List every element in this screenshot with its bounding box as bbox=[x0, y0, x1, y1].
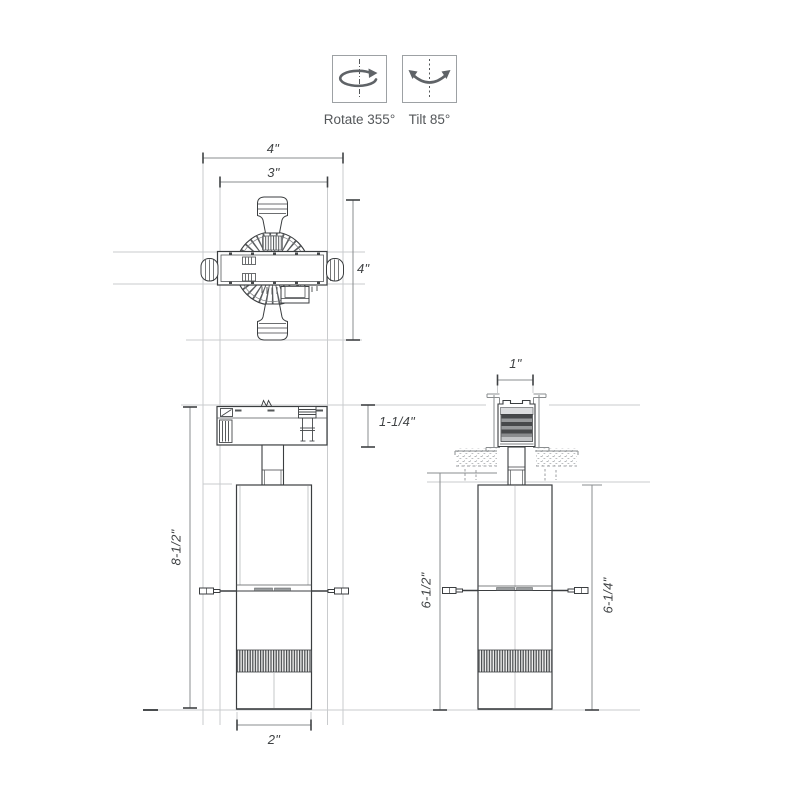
construction-lines bbox=[113, 163, 650, 731]
dim-recessed-height-right: 6-1/4" bbox=[601, 556, 616, 636]
tilt-icon-box bbox=[402, 55, 457, 103]
recessed-cylinder-body bbox=[478, 485, 552, 709]
knob-right bbox=[327, 259, 344, 282]
dim-recessed-opening: 1" bbox=[497, 356, 534, 371]
dim-top-inner-width: 3" bbox=[220, 165, 327, 180]
dim-overall-height: 8-1/2" bbox=[169, 508, 184, 588]
knob-left bbox=[201, 259, 218, 282]
stem bbox=[262, 445, 284, 485]
lamp-bottom bbox=[258, 304, 288, 340]
rotate-icon-box bbox=[332, 55, 387, 103]
recessed-stem bbox=[508, 447, 525, 485]
top-view-drawing bbox=[201, 197, 344, 340]
ribbed-band bbox=[478, 650, 552, 672]
yoke bbox=[281, 287, 309, 304]
track-mount-view-drawing bbox=[200, 401, 349, 710]
track-adapter-plan bbox=[218, 252, 328, 286]
spec-sheet: Rotate 355° Tilt 85° 4" 3" 4" 1-1/4" 8-1… bbox=[0, 0, 800, 800]
recessed-adapter bbox=[498, 401, 535, 447]
lamp-top bbox=[258, 197, 288, 233]
rotate-icon bbox=[333, 56, 386, 102]
recessed-mount-view-drawing bbox=[443, 393, 589, 709]
dim-top-outer-width: 4" bbox=[203, 141, 343, 156]
tilt-icon bbox=[403, 56, 456, 102]
tilt-label: Tilt 85° bbox=[397, 112, 462, 127]
dim-body-width: 2" bbox=[237, 732, 311, 747]
ribbed-band bbox=[237, 650, 312, 672]
dim-recessed-height-left: 6-1/2" bbox=[419, 551, 434, 631]
dim-top-depth: 4" bbox=[357, 261, 387, 276]
rotate-label: Rotate 355° bbox=[317, 112, 402, 127]
cylinder-body bbox=[237, 485, 312, 709]
dim-adapter-height: 1-1/4" bbox=[379, 414, 429, 429]
